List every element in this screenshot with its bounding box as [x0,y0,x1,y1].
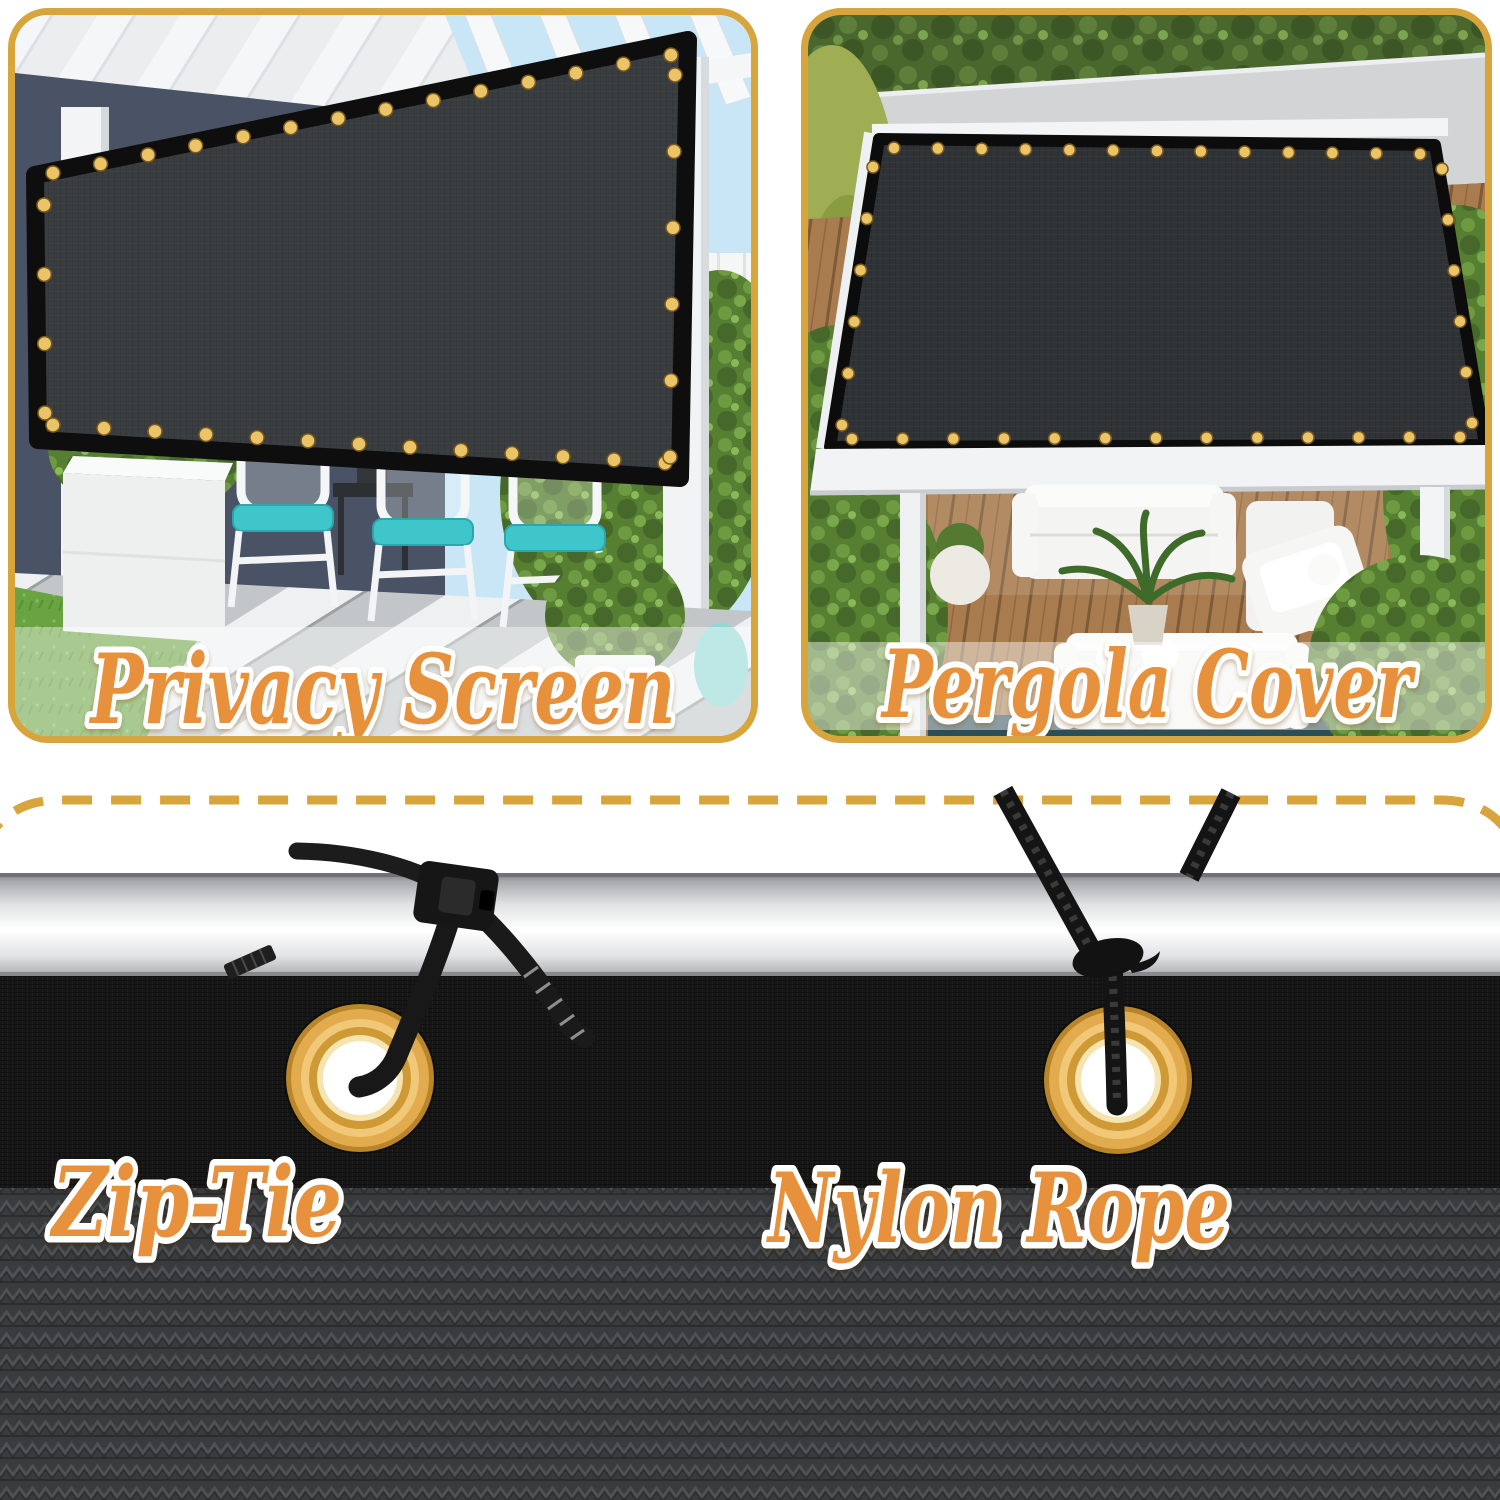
pergola-scene: Pergola Cover [808,15,1485,736]
panel-pergola-cover: Pergola Cover [801,8,1492,743]
product-collage: Privacy Screen [0,0,1500,1500]
zip-tie-head [412,860,500,933]
privacy-scene: Privacy Screen [15,15,751,736]
panel-privacy-screen: Privacy Screen [8,8,758,743]
caption-pergola-cover: Pergola Cover [880,630,1417,736]
caption-privacy-screen: Privacy Screen [88,633,675,736]
metal-pole [0,873,1500,976]
label-zip-tie: Zip-Tie [49,1146,342,1259]
installation-detail: Zip-Tie Nylon Rope [0,755,1500,1500]
label-nylon-rope: Nylon Rope [766,1152,1230,1265]
shade-cloth [830,139,1485,447]
